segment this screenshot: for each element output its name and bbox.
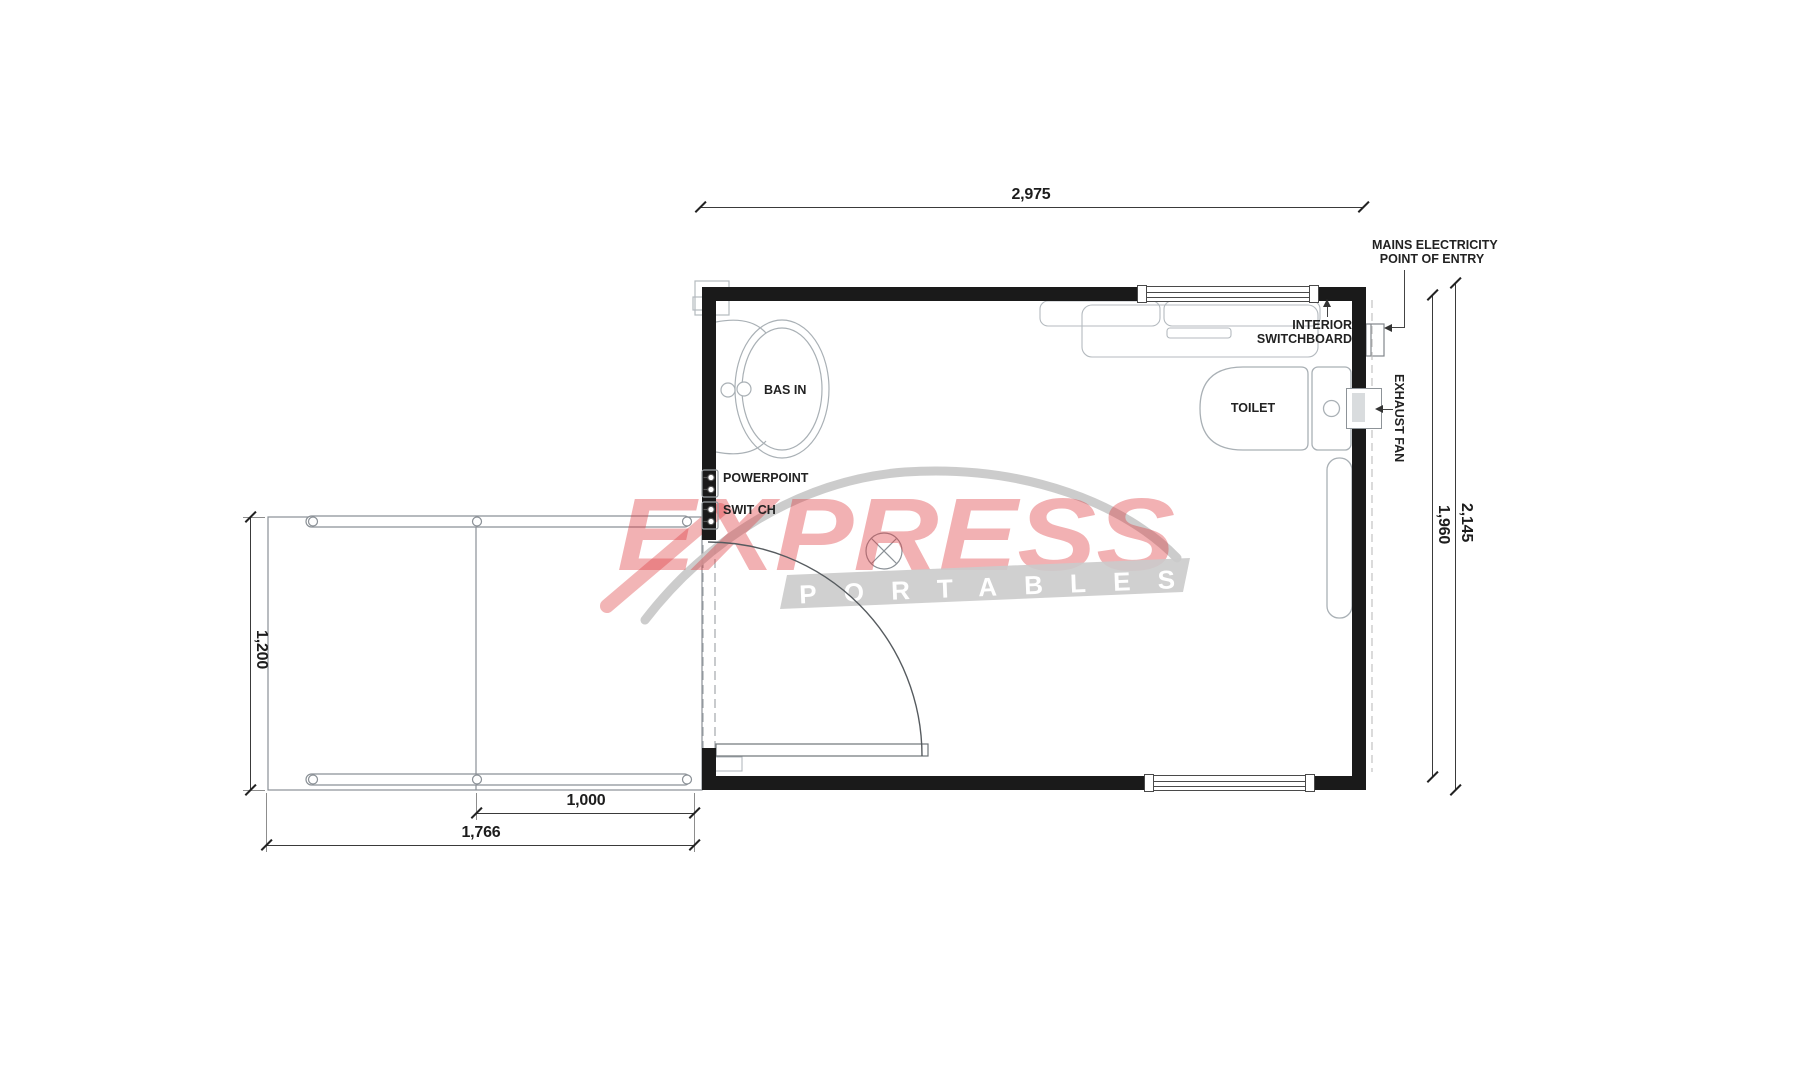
dim-extension xyxy=(243,790,265,791)
powerpoint-label: POWERPOINT xyxy=(723,471,808,485)
window-glass xyxy=(1153,781,1306,787)
wall-bottom-left-segment xyxy=(702,776,1145,790)
window-jamb xyxy=(1137,285,1147,303)
exhaust-fan-arrow xyxy=(1375,405,1383,413)
window-top xyxy=(1138,286,1318,302)
mains-arrow xyxy=(1384,324,1392,332)
switch-label: SWIT CH xyxy=(723,503,776,517)
wall-left-upper xyxy=(702,287,716,540)
window-glass xyxy=(1146,292,1310,298)
dim-overall-height: 2,145 xyxy=(1457,503,1475,542)
interior-switchboard-line1: INTERIOR xyxy=(1248,318,1352,332)
basin-label: BAS IN xyxy=(764,383,806,397)
dim-ramp-depth: 1,200 xyxy=(252,630,270,669)
dim-line-landing-width xyxy=(476,813,694,814)
window-jamb xyxy=(1144,774,1154,792)
mains-electricity-line1: MAINS ELECTRICITY xyxy=(1372,238,1492,252)
dim-line-overall-width xyxy=(700,207,1363,208)
mains-leader-line xyxy=(1404,270,1405,327)
exhaust-fan-grille xyxy=(1352,393,1365,422)
switchboard-box xyxy=(1366,324,1384,356)
wall-top-left-segment xyxy=(702,287,1138,301)
exhaust-fan-label: EXHAUST FAN xyxy=(1392,374,1406,462)
dim-internal-height: 1,960 xyxy=(1434,505,1452,544)
grab-rail xyxy=(1327,458,1352,618)
floor-plan-drawing: EXPRESS PORTABLES xyxy=(0,0,1800,1080)
mains-electricity-line2: POINT OF ENTRY xyxy=(1372,252,1492,266)
wall-bottom-right-segment xyxy=(1312,776,1366,790)
window-jamb xyxy=(1309,285,1319,303)
mains-electricity-label: MAINS ELECTRICITY POINT OF ENTRY xyxy=(1372,238,1492,266)
interior-switchboard-line2: SWITCHBOARD xyxy=(1248,332,1352,346)
dim-line-ramp-length xyxy=(266,845,694,846)
dim-landing-width: 1,000 xyxy=(546,792,626,810)
toilet-label: TOILET xyxy=(1213,401,1293,415)
window-jamb xyxy=(1305,774,1315,792)
interior-switchboard-label: INTERIOR SWITCHBOARD xyxy=(1248,318,1352,346)
express-portables-watermark: EXPRESS PORTABLES xyxy=(555,450,1235,650)
switchboard-arrow xyxy=(1323,299,1331,307)
wall-right xyxy=(1352,287,1366,790)
dim-overall-width: 2,975 xyxy=(991,186,1071,204)
dim-ramp-length: 1,766 xyxy=(441,824,521,842)
switchboard-leader-line xyxy=(1327,306,1328,317)
window-bottom xyxy=(1145,775,1314,791)
wall-left-lower xyxy=(702,748,716,790)
mains-leader-line xyxy=(1392,327,1405,328)
dim-extension xyxy=(243,517,265,518)
dim-extension xyxy=(476,793,477,820)
